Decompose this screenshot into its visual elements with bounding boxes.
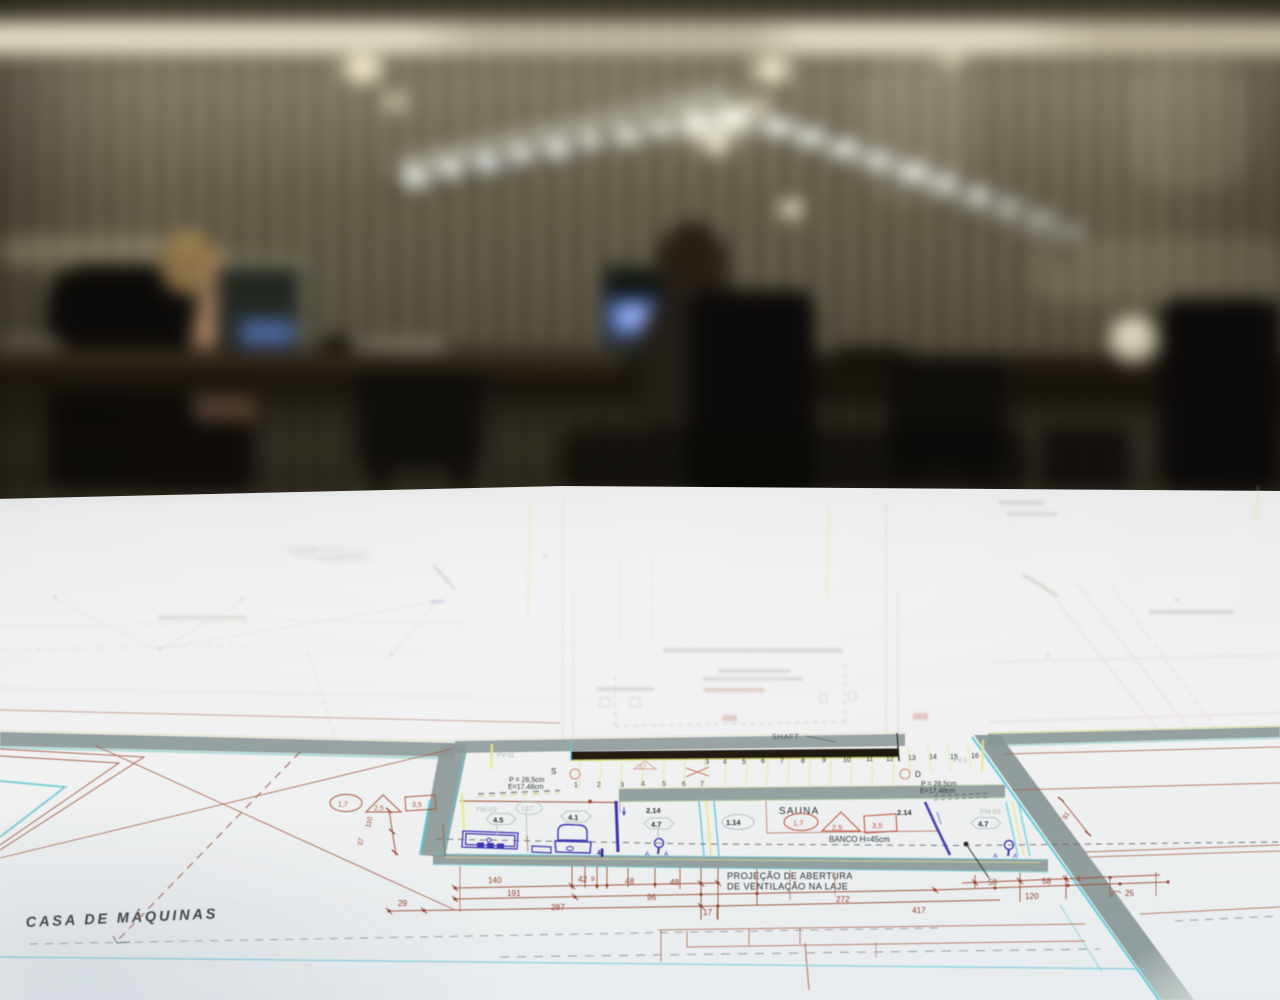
svg-text:BANCO H=45cm: BANCO H=45cm [829,835,890,844]
svg-text:13: 13 [908,755,916,762]
svg-text:12: 12 [886,756,894,763]
svg-text:48: 48 [625,877,635,886]
svg-text:48: 48 [670,878,680,887]
svg-text:4.1: 4.1 [568,813,578,822]
svg-text:2,5: 2,5 [374,806,384,813]
svg-text:140: 140 [488,876,502,885]
svg-text:CASA DE MÁQUINAS: CASA DE MÁQUINAS [25,905,218,931]
svg-text:S: S [551,767,556,776]
svg-text:37: 37 [357,837,365,846]
svg-text:2.14: 2.14 [646,806,661,815]
svg-text:42: 42 [578,875,588,884]
svg-text:PM-09: PM-09 [476,807,497,814]
svg-text:1,7: 1,7 [338,802,348,809]
svg-text:PV-11: PV-11 [497,752,515,759]
svg-text:8: 8 [801,758,805,765]
svg-text:2,7: 2,7 [639,765,646,771]
svg-text:2: 2 [597,782,601,789]
svg-text:2.14: 2.14 [897,808,912,817]
svg-text:4: 4 [641,781,645,788]
svg-text:110: 110 [365,816,374,828]
svg-text:6: 6 [682,781,686,788]
svg-text:1,7: 1,7 [793,819,803,828]
svg-text:120: 120 [1025,892,1039,901]
svg-text:5: 5 [742,759,746,766]
svg-text:4.7: 4.7 [651,820,661,829]
svg-text:10: 10 [843,757,851,764]
svg-text:A: A [1013,853,1018,860]
svg-text:58: 58 [1042,877,1052,886]
svg-text:16: 16 [971,753,979,760]
svg-text:7: 7 [700,781,704,788]
svg-text:17: 17 [703,908,713,917]
svg-text:58: 58 [988,878,998,887]
svg-text:29: 29 [398,899,408,908]
svg-text:272: 272 [836,895,850,904]
svg-text:9: 9 [822,757,826,764]
svg-text:1: 1 [574,782,578,789]
svg-text:25: 25 [1125,889,1135,898]
svg-text:3: 3 [620,782,624,789]
svg-text:4▌: 4▌ [597,848,606,858]
svg-text:3: 3 [705,759,709,766]
svg-text:5: 5 [662,781,666,788]
svg-text:14: 14 [929,754,937,761]
svg-text:6: 6 [761,758,765,765]
svg-text:P = 28,5cm: P = 28,5cm [921,781,957,788]
svg-text:7: 7 [780,758,784,765]
svg-text:4.7: 4.7 [978,820,988,829]
svg-text:11: 11 [866,756,873,763]
svg-text:91: 91 [1062,811,1072,821]
svg-text:E=17,48cm: E=17,48cm [920,788,956,795]
svg-text:E=17,48cm: E=17,48cm [508,784,544,791]
svg-text:96: 96 [647,893,657,902]
svg-text:191: 191 [507,889,521,898]
svg-text:PV-1: PV-1 [953,757,967,764]
svg-text:A: A [645,851,650,858]
svg-text:A: A [664,851,669,858]
svg-text:9: 9 [591,876,595,883]
svg-text:287: 287 [551,903,565,912]
svg-text:4: 4 [1076,875,1081,884]
svg-text:4.5: 4.5 [493,816,503,825]
svg-text:1.12: 1.12 [521,807,533,813]
svg-text:3,5: 3,5 [872,821,882,830]
svg-text:417: 417 [912,906,926,915]
svg-text:DE VENTILAÇÃO NA LAJE: DE VENTILAÇÃO NA LAJE [727,882,848,892]
svg-text:D: D [915,770,921,779]
svg-text:2,5: 2,5 [832,823,842,832]
svg-text:SAUNA: SAUNA [779,806,819,817]
svg-text:PM-09: PM-09 [980,809,1001,816]
svg-text:4: 4 [723,759,727,766]
svg-text:A: A [993,853,998,860]
svg-text:P = 28,5cm: P = 28,5cm [509,777,545,784]
svg-text:SHAFT: SHAFT [772,732,800,741]
svg-text:1.14: 1.14 [726,818,741,827]
svg-text:3,5: 3,5 [412,802,422,809]
